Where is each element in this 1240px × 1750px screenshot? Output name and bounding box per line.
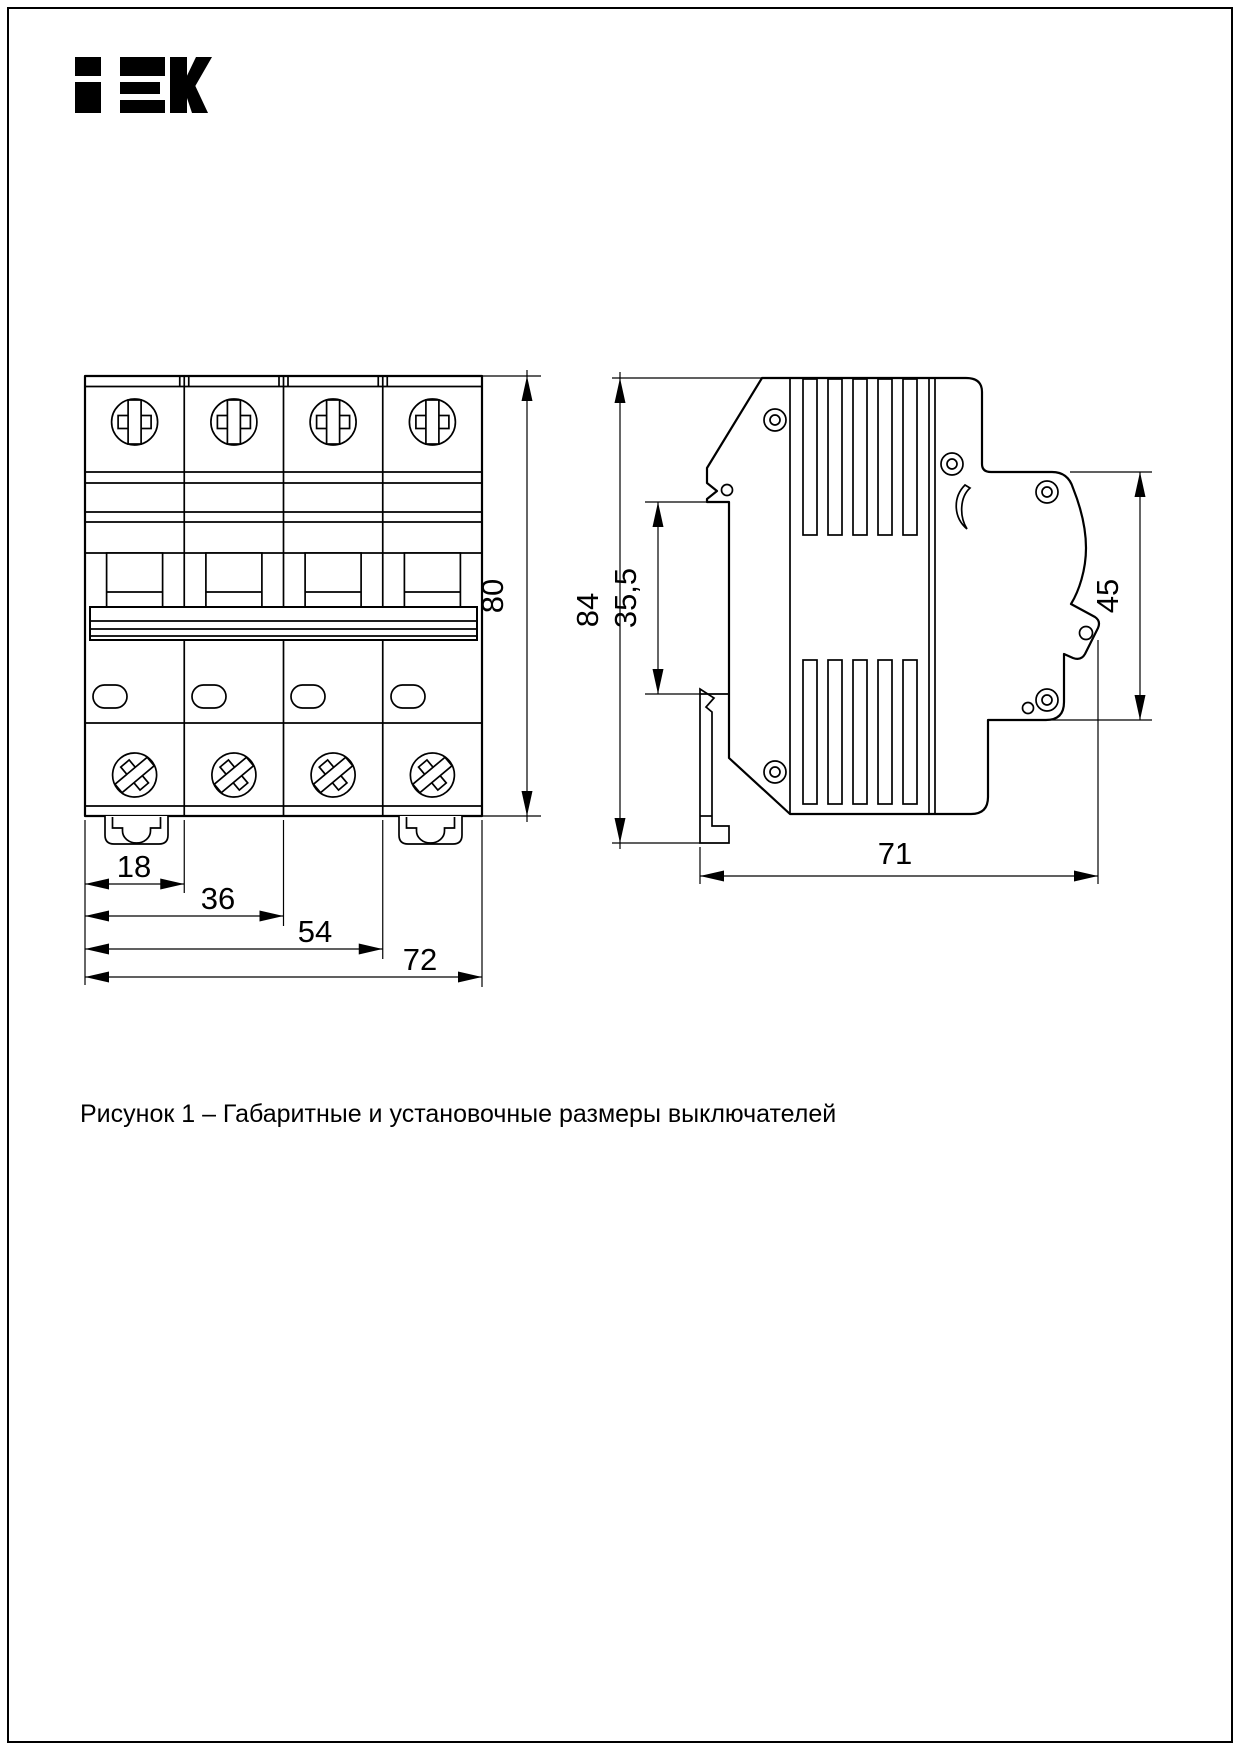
- iek-logo: [75, 57, 212, 113]
- dim-label-72: 72: [403, 942, 437, 977]
- dim-label-18: 18: [117, 849, 151, 884]
- dimension-height-80: 80: [475, 370, 541, 822]
- din-latch: [700, 689, 729, 843]
- vent-slot: [803, 379, 817, 535]
- dimension-rail-seat-35-5: 35,5: [608, 502, 709, 694]
- logo-k-stem: [170, 57, 187, 113]
- logo-e-bar: [120, 82, 160, 94]
- indicator-window: [192, 685, 226, 708]
- page: 80 18 36 54: [0, 0, 1240, 1750]
- figure-drawing: 80 18 36 54: [0, 0, 1240, 1750]
- toggle-handle: [404, 553, 460, 607]
- vent-slot: [828, 660, 842, 804]
- dim-label-36: 36: [201, 881, 235, 916]
- dimension-width-18: 18: [85, 849, 184, 890]
- screw-icon: [409, 399, 455, 445]
- page-border: [8, 8, 1232, 1742]
- vent-slot: [853, 379, 867, 535]
- vent-slot: [828, 379, 842, 535]
- dimension-width-72: 72: [85, 942, 482, 983]
- logo-i-dot: [75, 57, 101, 76]
- logo-e-bar: [120, 100, 165, 113]
- vent-slot: [903, 660, 917, 804]
- vent-slot: [803, 660, 817, 804]
- figure-caption: Рисунок 1 – Габаритные и установочные ра…: [80, 1100, 836, 1129]
- screw-icon: [310, 399, 356, 445]
- dim-label-45: 45: [1090, 579, 1125, 613]
- screw-icon: [211, 399, 257, 445]
- vent-slot: [878, 379, 892, 535]
- indicator-window: [291, 685, 325, 708]
- logo-i-stem: [75, 82, 101, 113]
- dim-label-35-5: 35,5: [608, 568, 643, 628]
- toggle-handle: [305, 553, 361, 607]
- dim-label-71: 71: [878, 836, 912, 871]
- dim-label-80: 80: [475, 579, 510, 613]
- indicator-window: [93, 685, 127, 708]
- screw-icon: [112, 399, 158, 445]
- dimension-width-54: 54: [85, 914, 383, 955]
- logo-e-bar: [120, 57, 165, 76]
- dim-label-54: 54: [298, 914, 332, 949]
- toggle-tie-bar: [90, 607, 477, 640]
- side-view: 84 35,5 45 71: [570, 372, 1152, 884]
- vent-slot: [853, 660, 867, 804]
- toggle-handle: [206, 553, 262, 607]
- vent-slot: [878, 660, 892, 804]
- front-view: 80 18 36 54: [85, 370, 541, 987]
- indicator-window: [391, 685, 425, 708]
- vent-slot: [903, 379, 917, 535]
- toggle-handle: [107, 553, 163, 607]
- dim-label-84: 84: [570, 593, 605, 627]
